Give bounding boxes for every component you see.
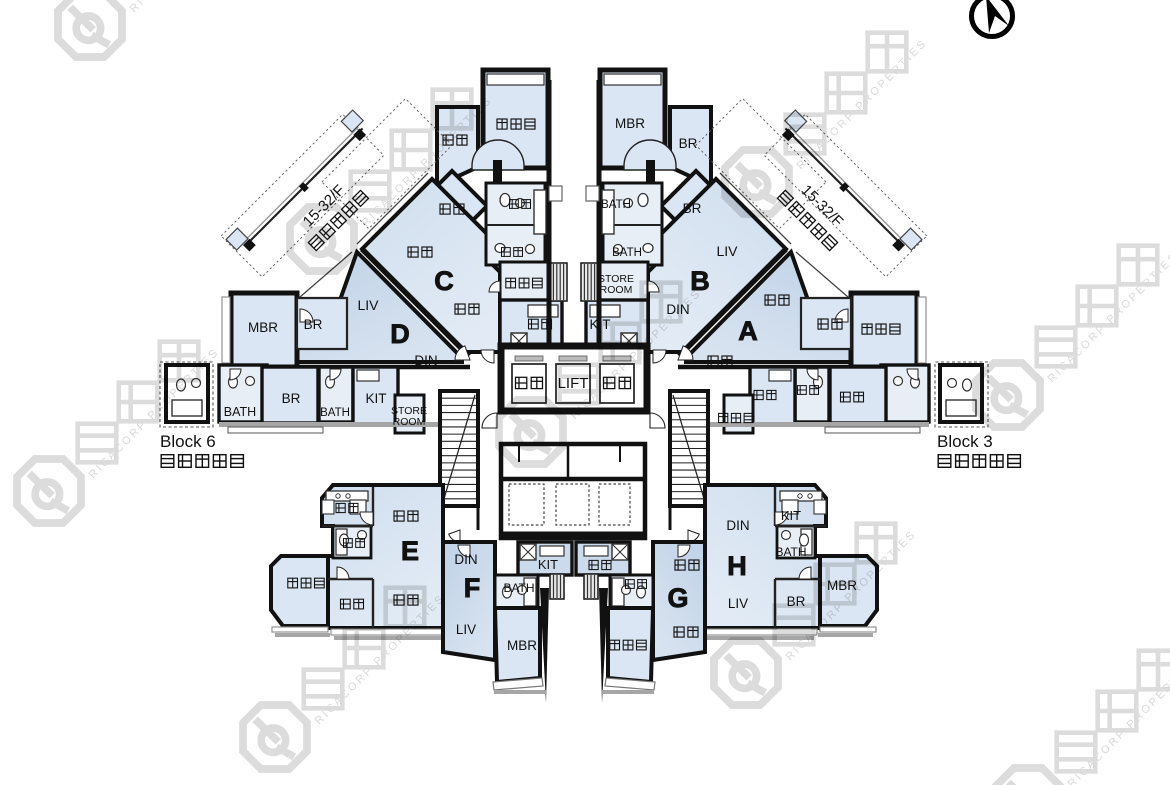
svg-text:D: D [390, 319, 410, 349]
svg-text:E: E [401, 536, 419, 566]
svg-text:LIV: LIV [357, 297, 379, 313]
svg-text:BR: BR [683, 201, 702, 216]
svg-text:BATH: BATH [601, 199, 631, 211]
svg-text:DIN: DIN [726, 518, 749, 533]
svg-text:BATH: BATH [775, 545, 806, 559]
svg-text:LIV: LIV [728, 596, 748, 611]
svg-text:BR: BR [679, 136, 698, 151]
svg-text:MBR: MBR [248, 320, 278, 335]
svg-text:ROOM: ROOM [393, 416, 426, 428]
svg-text:BATH: BATH [320, 407, 350, 419]
svg-text:DIN: DIN [454, 552, 477, 567]
svg-text:ROOM: ROOM [600, 284, 633, 296]
svg-text:H: H [727, 551, 747, 581]
svg-text:BATH: BATH [612, 247, 642, 259]
svg-text:BATH: BATH [503, 581, 534, 595]
svg-text:BATH: BATH [224, 405, 256, 419]
svg-text:BR: BR [304, 317, 323, 332]
svg-text:LIV: LIV [716, 243, 738, 259]
svg-text:KIT: KIT [538, 557, 558, 572]
svg-text:KIT: KIT [365, 391, 386, 406]
svg-text:F: F [464, 573, 481, 603]
svg-text:G: G [667, 583, 688, 613]
svg-text:C: C [434, 266, 454, 296]
svg-text:LIV: LIV [456, 622, 476, 637]
svg-text:A: A [738, 316, 758, 346]
svg-text:DIN: DIN [414, 353, 437, 368]
svg-text:MBR: MBR [615, 116, 645, 131]
svg-text:MBR: MBR [507, 638, 537, 653]
svg-text:BR: BR [282, 391, 301, 406]
svg-text:Block 6: Block 6 [160, 432, 216, 451]
svg-text:KIT: KIT [781, 508, 801, 523]
svg-text:Block 3: Block 3 [937, 432, 993, 451]
